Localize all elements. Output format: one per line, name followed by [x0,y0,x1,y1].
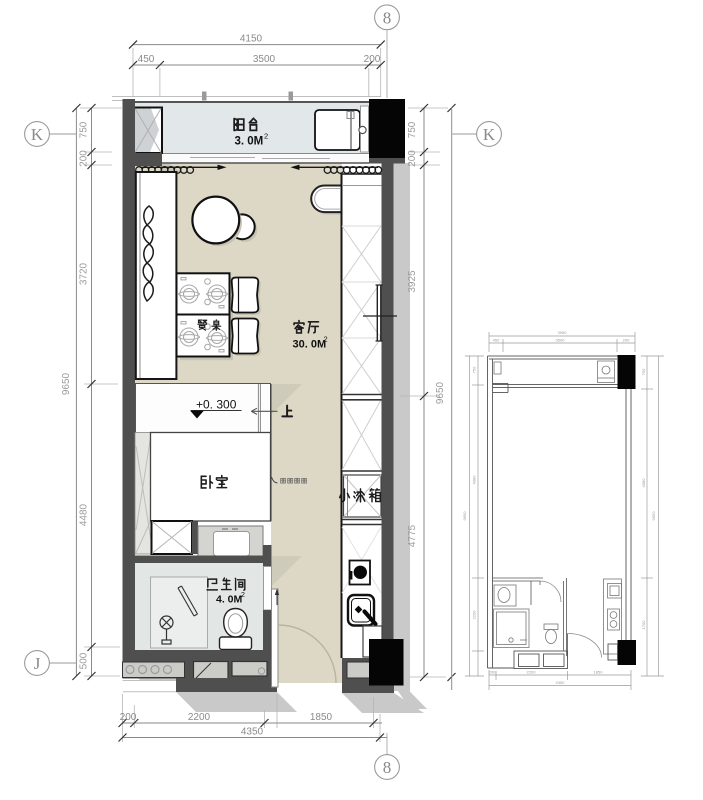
svg-text:4775: 4775 [407,524,418,547]
svg-text:1850: 1850 [310,712,333,723]
svg-text:2200: 2200 [188,712,211,723]
svg-text:750: 750 [79,121,90,138]
svg-text:2: 2 [241,592,245,599]
svg-text:4. 0M: 4. 0M [216,594,243,606]
svg-text:450: 450 [138,54,155,65]
svg-text:3950: 3950 [558,330,568,335]
svg-text:9650: 9650 [462,511,467,521]
svg-text:3720: 3720 [79,262,90,285]
svg-text:4080: 4080 [472,475,477,485]
svg-text:750: 750 [641,368,646,375]
svg-text:3500: 3500 [253,54,276,65]
svg-text:8: 8 [383,9,392,28]
svg-text:8: 8 [383,758,392,777]
svg-text:750: 750 [472,366,477,373]
svg-text:200: 200 [489,670,496,675]
svg-text:4350: 4350 [556,680,566,685]
svg-text:200: 200 [79,150,90,167]
svg-text:3. 0M: 3. 0M [235,136,264,148]
svg-text:200: 200 [364,54,381,65]
svg-text:500: 500 [79,652,90,669]
svg-text:9650: 9650 [435,381,446,404]
svg-text:200: 200 [120,712,137,723]
svg-text:1700: 1700 [641,620,646,630]
svg-text:2200: 2200 [527,670,537,675]
svg-text:4080: 4080 [641,478,646,488]
svg-text:30. 0M: 30. 0M [293,339,327,351]
svg-text:4480: 4480 [79,503,90,526]
svg-text:9650: 9650 [651,511,656,521]
svg-text:2: 2 [324,335,328,344]
svg-text:3500: 3500 [556,338,566,343]
svg-text:2200: 2200 [472,610,477,620]
svg-text:3925: 3925 [407,270,418,293]
svg-text:750: 750 [407,121,418,138]
svg-text:200: 200 [407,150,418,167]
svg-text:9650: 9650 [61,372,72,395]
svg-text:200: 200 [623,338,630,343]
svg-text:4150: 4150 [240,34,263,45]
svg-text:4350: 4350 [241,727,264,738]
svg-text:2: 2 [264,132,268,141]
svg-text:K: K [31,125,44,144]
svg-text:+0. 300: +0. 300 [196,398,237,412]
svg-text:450: 450 [493,338,500,343]
svg-text:1850: 1850 [594,670,604,675]
svg-text:J: J [34,654,41,673]
svg-text:K: K [483,125,496,144]
